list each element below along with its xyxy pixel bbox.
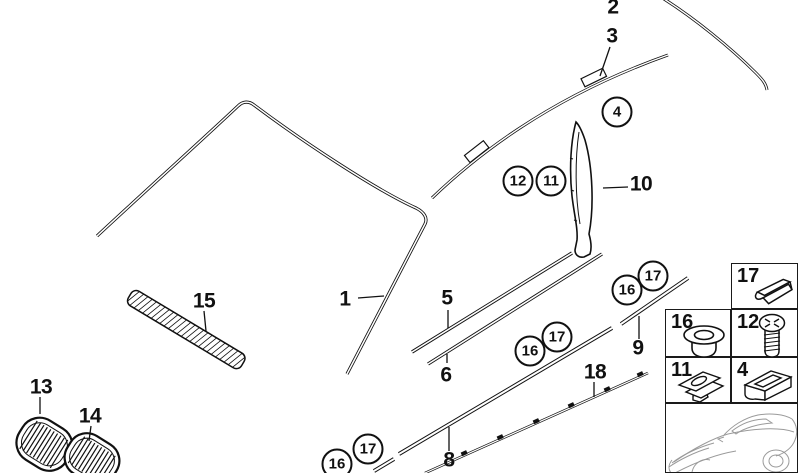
callout-14[interactable]: 14 bbox=[79, 406, 101, 427]
callout-9[interactable]: 9 bbox=[632, 338, 643, 359]
spring-clip-icon bbox=[732, 264, 799, 310]
circled-callout-17-a[interactable]: 17 bbox=[542, 322, 573, 353]
expansion-clip-icon bbox=[666, 358, 732, 404]
part-2-roof-drip-molding bbox=[656, 0, 767, 90]
screw-icon bbox=[732, 310, 799, 358]
callout-1[interactable]: 1 bbox=[339, 289, 350, 310]
circled-callout-17-c[interactable]: 17 bbox=[353, 434, 384, 465]
part-15-cowl-strip bbox=[119, 283, 249, 373]
callout-6[interactable]: 6 bbox=[440, 365, 451, 386]
legend-cell-11[interactable]: 11 bbox=[665, 357, 731, 403]
part-1-windshield-molding bbox=[97, 102, 426, 374]
callout-3[interactable]: 3 bbox=[606, 26, 617, 47]
legend-cell-4[interactable]: 4 bbox=[731, 357, 798, 403]
circled-callout-17-b[interactable]: 17 bbox=[638, 261, 669, 292]
legend-cell-16[interactable]: 16 bbox=[665, 309, 731, 357]
parts-diagram-canvas: 2 3 1 5 6 8 9 10 13 14 15 18 4 12 11 16 … bbox=[0, 0, 799, 473]
bracket-clip-icon bbox=[732, 358, 799, 404]
callout-leader-lines bbox=[40, 47, 639, 451]
callout-5[interactable]: 5 bbox=[441, 288, 452, 309]
part-18-clip-strip bbox=[425, 371, 648, 473]
circled-callout-11[interactable]: 11 bbox=[536, 166, 567, 197]
coupe-silhouette bbox=[666, 404, 798, 473]
legend-cell-12[interactable]: 12 bbox=[731, 309, 798, 357]
vehicle-thumbnail-box[interactable] bbox=[665, 403, 798, 473]
circled-callout-12[interactable]: 12 bbox=[503, 166, 534, 197]
callout-15[interactable]: 15 bbox=[193, 291, 215, 312]
callout-10[interactable]: 10 bbox=[630, 174, 652, 195]
circled-callout-4[interactable]: 4 bbox=[602, 97, 633, 128]
legend-cell-17[interactable]: 17 bbox=[731, 263, 798, 309]
callout-13[interactable]: 13 bbox=[30, 377, 52, 398]
callout-2[interactable]: 2 bbox=[607, 0, 618, 18]
part-8-side-molding bbox=[374, 328, 612, 471]
circled-callout-16-c[interactable]: 16 bbox=[322, 449, 353, 473]
grommet-icon bbox=[666, 310, 732, 358]
callout-18[interactable]: 18 bbox=[584, 362, 606, 383]
callout-8[interactable]: 8 bbox=[443, 450, 454, 471]
part-10-pillar-trim bbox=[570, 122, 592, 257]
